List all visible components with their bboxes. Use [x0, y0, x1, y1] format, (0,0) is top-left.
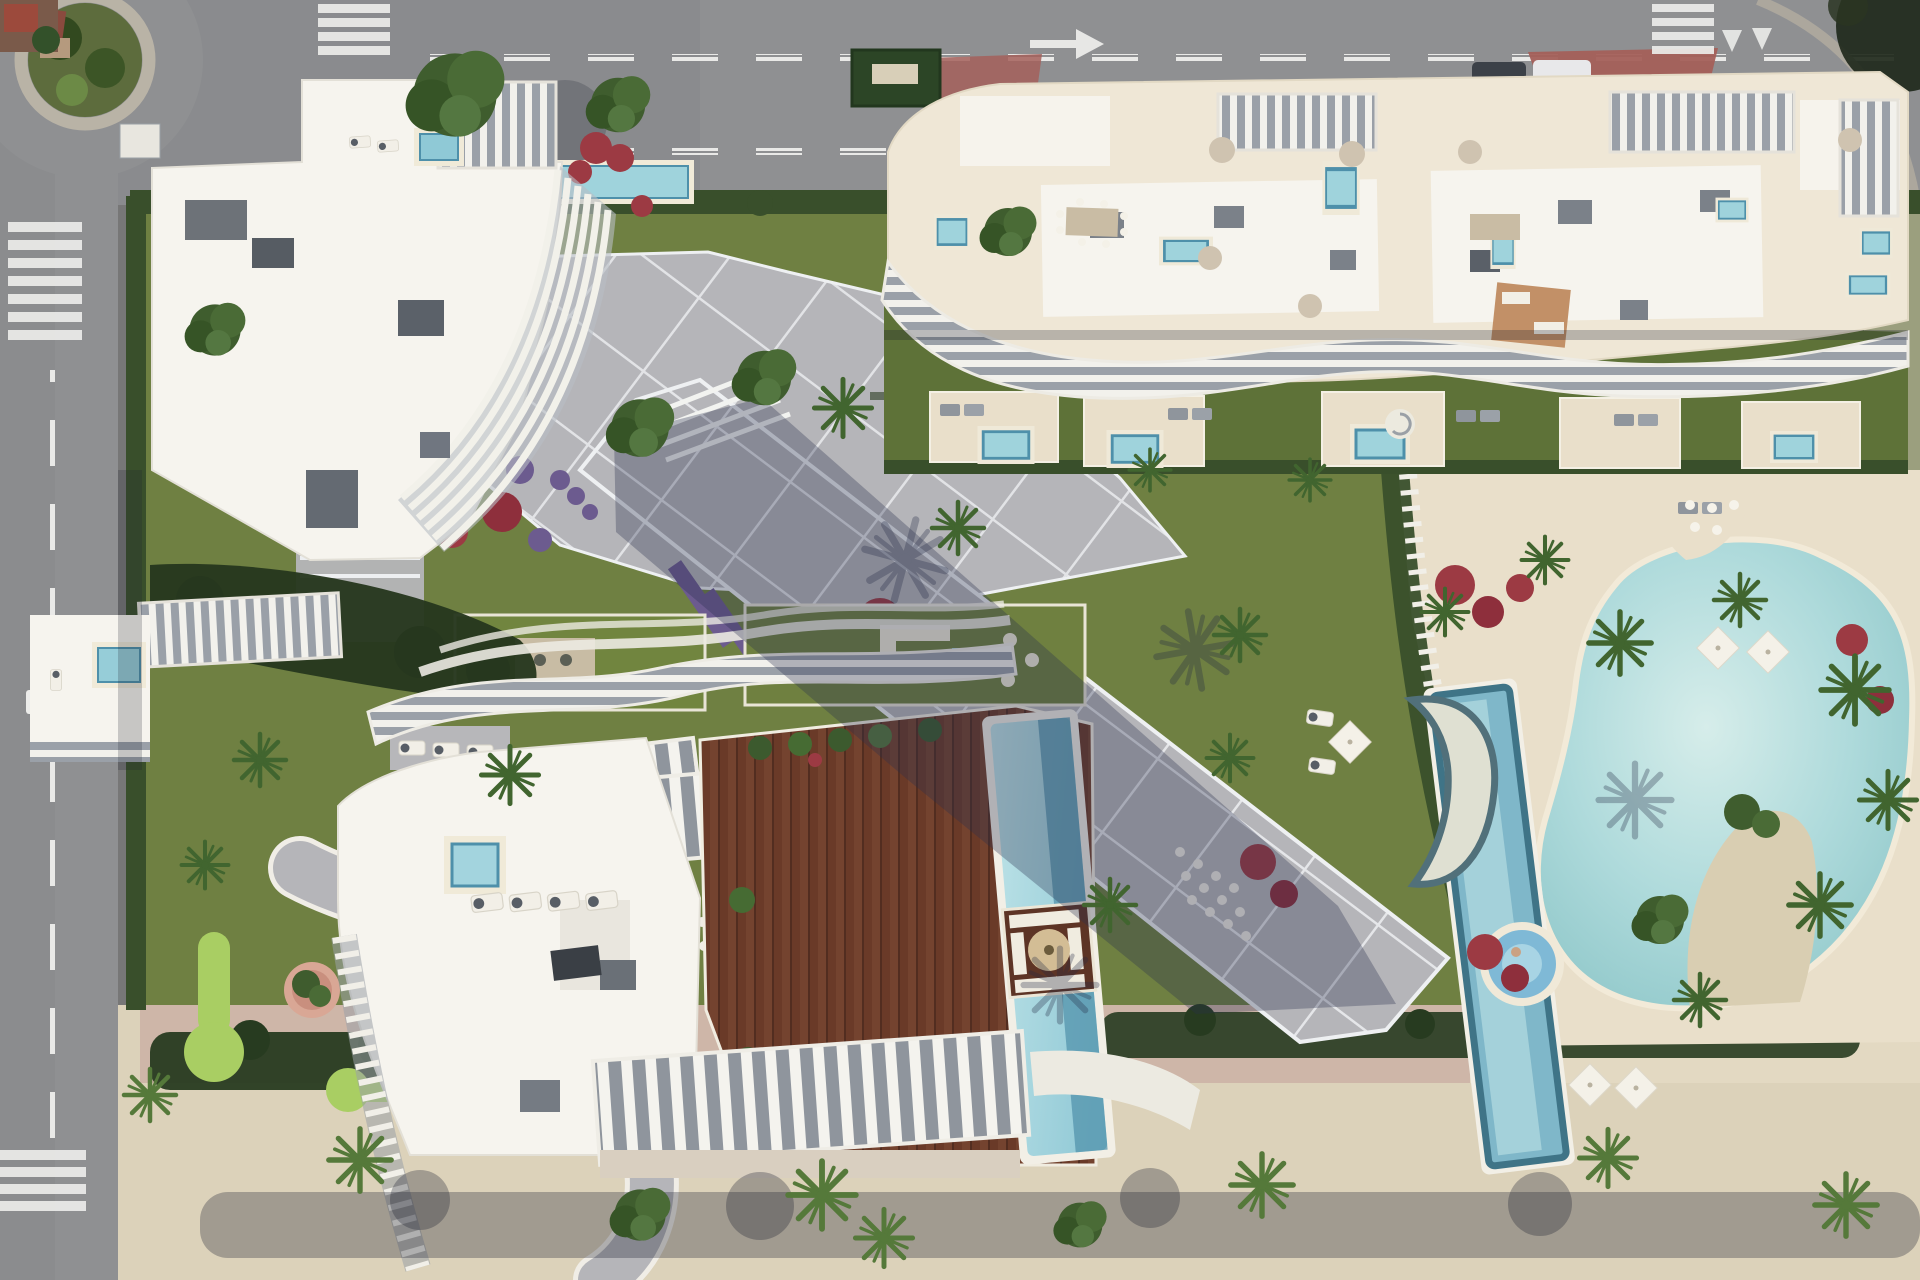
- rooftop-plunge-pool: [444, 836, 506, 894]
- palm-tree: [1522, 537, 1569, 584]
- palm-tree: [124, 1069, 176, 1121]
- palm-tree: [1674, 974, 1726, 1026]
- corner-building: [0, 0, 60, 54]
- roof-slab: [1431, 165, 1764, 323]
- palm-tree: [1422, 589, 1469, 636]
- palm-tree: [1821, 656, 1889, 724]
- rooftop-plunge-pool: [1322, 161, 1359, 215]
- plunge-pool: [1770, 431, 1818, 463]
- palm-tree: [788, 1161, 856, 1229]
- palm-tree: [1289, 459, 1331, 501]
- palm-tree: [1231, 1154, 1293, 1216]
- palm-tree: [1789, 874, 1851, 936]
- palm-tree: [1859, 771, 1916, 828]
- palm-tree: [234, 734, 286, 786]
- outdoor-table: [550, 945, 601, 981]
- rooftop-plunge-pool: [934, 214, 970, 250]
- garden-room: [852, 50, 940, 106]
- palm-tree: [1084, 879, 1136, 931]
- spiral-stair: [1385, 409, 1415, 439]
- palm-tree: [182, 842, 229, 889]
- palm-tree: [1589, 612, 1651, 674]
- palm-tree: [329, 1129, 391, 1191]
- palm-tree: [1207, 735, 1254, 782]
- palm-tree: [1579, 1129, 1636, 1186]
- round-planter: [284, 962, 340, 1018]
- plunge-pool: [978, 426, 1035, 464]
- aerial-render: Aerial architectural render of a seafron…: [0, 0, 1920, 1280]
- louvre-fence: [138, 593, 341, 667]
- palm-tree: [1714, 574, 1766, 626]
- palm-tree: [814, 379, 871, 436]
- palm-tree: [855, 1209, 912, 1266]
- rooftop-plunge-pool: [1846, 273, 1891, 298]
- palm-tree: [481, 746, 538, 803]
- palm-tree: [1129, 449, 1171, 491]
- palm-tree: [1815, 1174, 1877, 1236]
- pergola-slats: [1840, 100, 1898, 216]
- building-b: [882, 72, 1908, 535]
- palm-tree: [1214, 609, 1266, 661]
- palm-tree: [932, 502, 984, 554]
- rooftop-plunge-pool: [1716, 198, 1749, 223]
- pergola-slats: [1610, 92, 1794, 152]
- rooftop-plunge-pool: [1860, 228, 1893, 258]
